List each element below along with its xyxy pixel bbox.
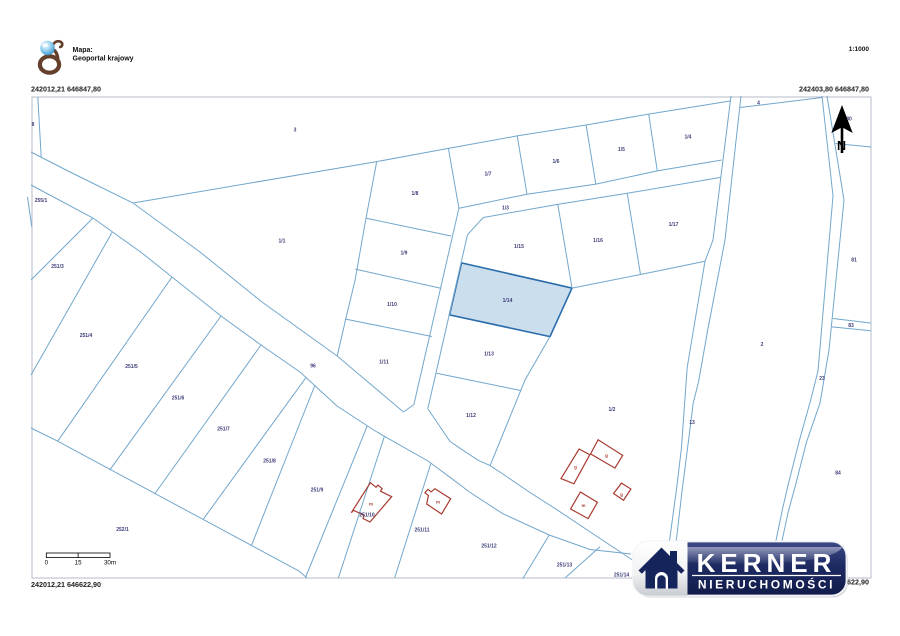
svg-text:251/13: 251/13 — [557, 562, 573, 568]
svg-text:242012,21 646847,80: 242012,21 646847,80 — [31, 85, 101, 94]
svg-text:1/17: 1/17 — [669, 222, 679, 228]
svg-text:242403,80 646847,80: 242403,80 646847,80 — [799, 85, 869, 94]
svg-text:255/1: 255/1 — [35, 198, 48, 204]
svg-text:251/8: 251/8 — [263, 458, 276, 464]
svg-text:251/12: 251/12 — [481, 543, 497, 549]
svg-text:242012,21 646622,90: 242012,21 646622,90 — [31, 580, 101, 589]
svg-text:8: 8 — [32, 122, 35, 128]
svg-text:g: g — [574, 465, 577, 470]
svg-text:251/10: 251/10 — [359, 512, 375, 518]
svg-text:1:1000: 1:1000 — [849, 46, 870, 53]
svg-text:g: g — [605, 453, 608, 458]
svg-text:1/14: 1/14 — [503, 298, 513, 304]
svg-text:251/14: 251/14 — [614, 572, 630, 578]
svg-text:84: 84 — [835, 470, 841, 476]
svg-text:KERNER: KERNER — [697, 548, 837, 578]
svg-text:1/12: 1/12 — [466, 413, 476, 419]
svg-text:4: 4 — [757, 100, 760, 106]
svg-text:251/11: 251/11 — [414, 527, 429, 533]
svg-text:N: N — [837, 139, 846, 153]
svg-text:251/9: 251/9 — [311, 487, 324, 493]
svg-text:251/5: 251/5 — [125, 364, 138, 370]
svg-text:Geoportal krajowy: Geoportal krajowy — [73, 56, 134, 63]
svg-text:1/2: 1/2 — [609, 407, 616, 413]
svg-text:96: 96 — [310, 363, 316, 369]
svg-text:251/7: 251/7 — [217, 426, 230, 432]
svg-text:3: 3 — [294, 127, 297, 133]
svg-text:1/16: 1/16 — [593, 238, 603, 244]
svg-text:1/10: 1/10 — [387, 302, 397, 308]
svg-text:15: 15 — [75, 560, 82, 567]
svg-text:251/3: 251/3 — [51, 264, 64, 270]
svg-text:Mapa:: Mapa: — [73, 47, 93, 54]
svg-text:m: m — [581, 503, 585, 508]
svg-text:0: 0 — [45, 560, 49, 567]
svg-text:2: 2 — [761, 342, 764, 348]
svg-text:1/11: 1/11 — [379, 359, 389, 365]
svg-text:1/1: 1/1 — [279, 238, 286, 244]
svg-text:m: m — [436, 500, 440, 505]
svg-text:1/5: 1/5 — [618, 147, 625, 153]
svg-text:1/6: 1/6 — [553, 159, 560, 165]
svg-text:252/1: 252/1 — [116, 527, 129, 533]
svg-text:251/4: 251/4 — [80, 333, 93, 339]
svg-text:1/8: 1/8 — [412, 191, 419, 197]
svg-text:m: m — [369, 502, 373, 507]
svg-text:1/9: 1/9 — [401, 250, 408, 256]
svg-text:NIERUCHOMOŚCI: NIERUCHOMOŚCI — [698, 577, 835, 592]
svg-text:83: 83 — [848, 323, 854, 329]
svg-text:13: 13 — [689, 420, 695, 426]
svg-text:1/15: 1/15 — [514, 244, 524, 250]
svg-text:1/13: 1/13 — [484, 351, 494, 357]
svg-text:81: 81 — [851, 257, 857, 263]
svg-text:1/4: 1/4 — [685, 134, 692, 140]
svg-text:251/6: 251/6 — [172, 395, 185, 401]
svg-text:1/3: 1/3 — [502, 205, 509, 211]
svg-text:g: g — [620, 492, 623, 497]
svg-text:1/7: 1/7 — [485, 171, 492, 177]
svg-text:30m: 30m — [104, 560, 116, 567]
svg-text:23: 23 — [819, 376, 825, 382]
